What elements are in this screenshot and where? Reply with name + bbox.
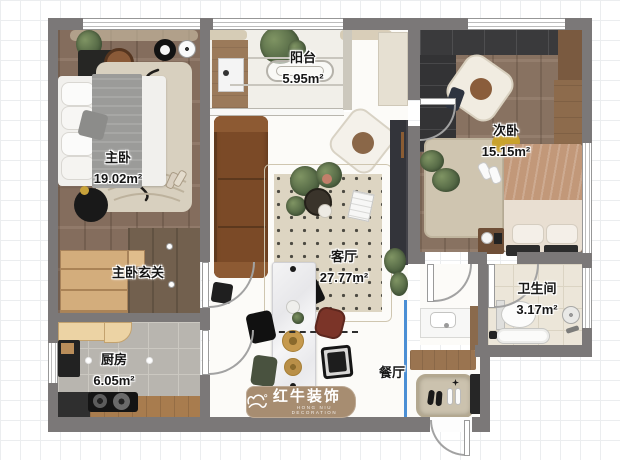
glass-partition [404,300,407,417]
watermark-text: 红牛装饰 HONG NIU DECORATION [273,389,356,415]
flower-accent [322,174,332,184]
room-name: 主卧 [94,148,142,169]
tile-dot [146,357,153,364]
shoes [435,391,442,406]
room-name: 次卧 [482,121,530,142]
sofa [214,116,268,278]
tv-accent [401,132,404,158]
room-area: 27.77m² [320,268,368,289]
vanity-sink [430,312,456,328]
window [582,268,592,328]
room-area: 6.05m² [93,371,134,392]
window [582,143,592,253]
gold-plate [282,330,304,352]
dining-chair [250,354,278,387]
watermark-badge: 红牛装饰 HONG NIU DECORATION [246,386,356,418]
door-leaf [427,264,434,302]
room-label-bathroom: 卫生间 3.17m² [516,279,557,321]
handle-dot [168,281,175,288]
brand-name: 红牛装饰 [273,389,356,404]
gold-plate [284,358,302,376]
wardrobe [420,27,567,55]
room-label-kitchen: 厨房 6.05m² [93,350,134,392]
shoes [447,388,453,405]
room-label-living-room: 客厅 27.77m² [320,247,368,289]
door-leaf [420,98,456,105]
washer-dot [223,70,229,76]
room-label-master-hall: 主卧玄关 [112,263,164,284]
kitchen-cabinet-dark [58,392,90,417]
sofa-seam [218,226,266,228]
brand-tagline: HONG NIU DECORATION [273,406,356,415]
room-name: 餐厅 [379,363,405,384]
pendant-lamp-icon [178,40,196,58]
entry-rug [416,374,474,418]
plant-icon [286,196,306,216]
armchair-cushion [470,78,492,100]
wall-entry-right [480,345,490,432]
nightstand-item [494,233,502,244]
ceiling-fan-icon [154,39,176,61]
tile-dot [85,357,92,364]
bath-item [489,331,497,339]
door-leaf [202,330,209,375]
washing-machine [218,58,244,92]
wall-bedroom2-bath [517,252,592,264]
sofa-armrest [214,116,268,132]
fridge-inner [61,343,74,354]
corner-cabinet [558,30,582,80]
room-label-master-bedroom: 主卧 19.02m² [94,148,142,190]
window [48,343,58,383]
wall-kitchen-dining [200,375,210,432]
table-lamp-icon [481,232,493,244]
faucet-dot [444,323,449,328]
table-accent [80,186,89,195]
shower-head-icon [562,306,580,324]
curtain [205,30,247,40]
bull-logo-icon [246,392,268,412]
wall-bottom [48,417,490,432]
shoes [455,388,461,405]
stove-burner [113,393,130,410]
candle-dot [290,266,296,272]
round-side-table [74,188,108,222]
wall-balcony-stub [343,30,352,110]
room-label-second-bedroom: 次卧 15.15m² [482,121,530,163]
bathtub [496,328,550,344]
serving-tray [318,204,332,218]
floor-plan: 主卧 19.02m² 主卧玄关 阳台 5.95m² 客厅 27.77m² 餐厅 … [0,0,620,460]
room-label-balcony: 阳台 5.95m² [282,48,323,90]
wall-living-bedroom2 [408,18,420,100]
wall-hall-kitchen [48,313,210,322]
room-label-dining-room: 餐厅 [379,363,405,384]
room-area: 3.17m² [516,300,557,321]
door-swing-arc [430,420,466,456]
plant-icon [384,248,406,274]
door-leaf [488,264,495,308]
window [83,18,200,30]
door-leaf [464,420,470,456]
room-area: 15.15m² [482,142,530,163]
room-name: 主卧玄关 [112,263,164,284]
wall-living-bedroom2 [408,126,420,262]
room-name: 卫生间 [516,279,557,300]
sofa-seam [218,178,266,180]
wall-master-living [200,18,210,262]
tv-panel [390,120,408,265]
shoe-cabinet [410,350,476,370]
wall-bathroom-bottom [475,345,592,357]
plant-icon [390,272,408,296]
wall-bedroom2-bath [468,252,487,264]
wall-bedroom2-bath [408,252,425,264]
room-area: 5.95m² [282,69,323,90]
room-name: 客厅 [320,247,368,268]
side-cabinet [378,32,408,106]
room-name: 厨房 [93,350,134,371]
table-greenery-icon [292,312,304,324]
wall-nook-bath [478,264,488,345]
pillow [546,224,578,244]
window [213,18,343,30]
pillow [61,82,95,106]
stove-burner [93,394,107,408]
plant-icon [432,168,460,192]
room-name: 阳台 [282,48,323,69]
desk-cabinet [554,80,582,150]
room-area: 19.02m² [94,169,142,190]
pillow [61,156,95,180]
handle-dot [166,243,173,250]
window [468,18,565,30]
pillow [512,224,544,244]
chair-seat [327,351,347,373]
door-leaf [202,262,209,308]
balcony-sill [210,108,344,116]
armchair-cushion [352,132,374,154]
